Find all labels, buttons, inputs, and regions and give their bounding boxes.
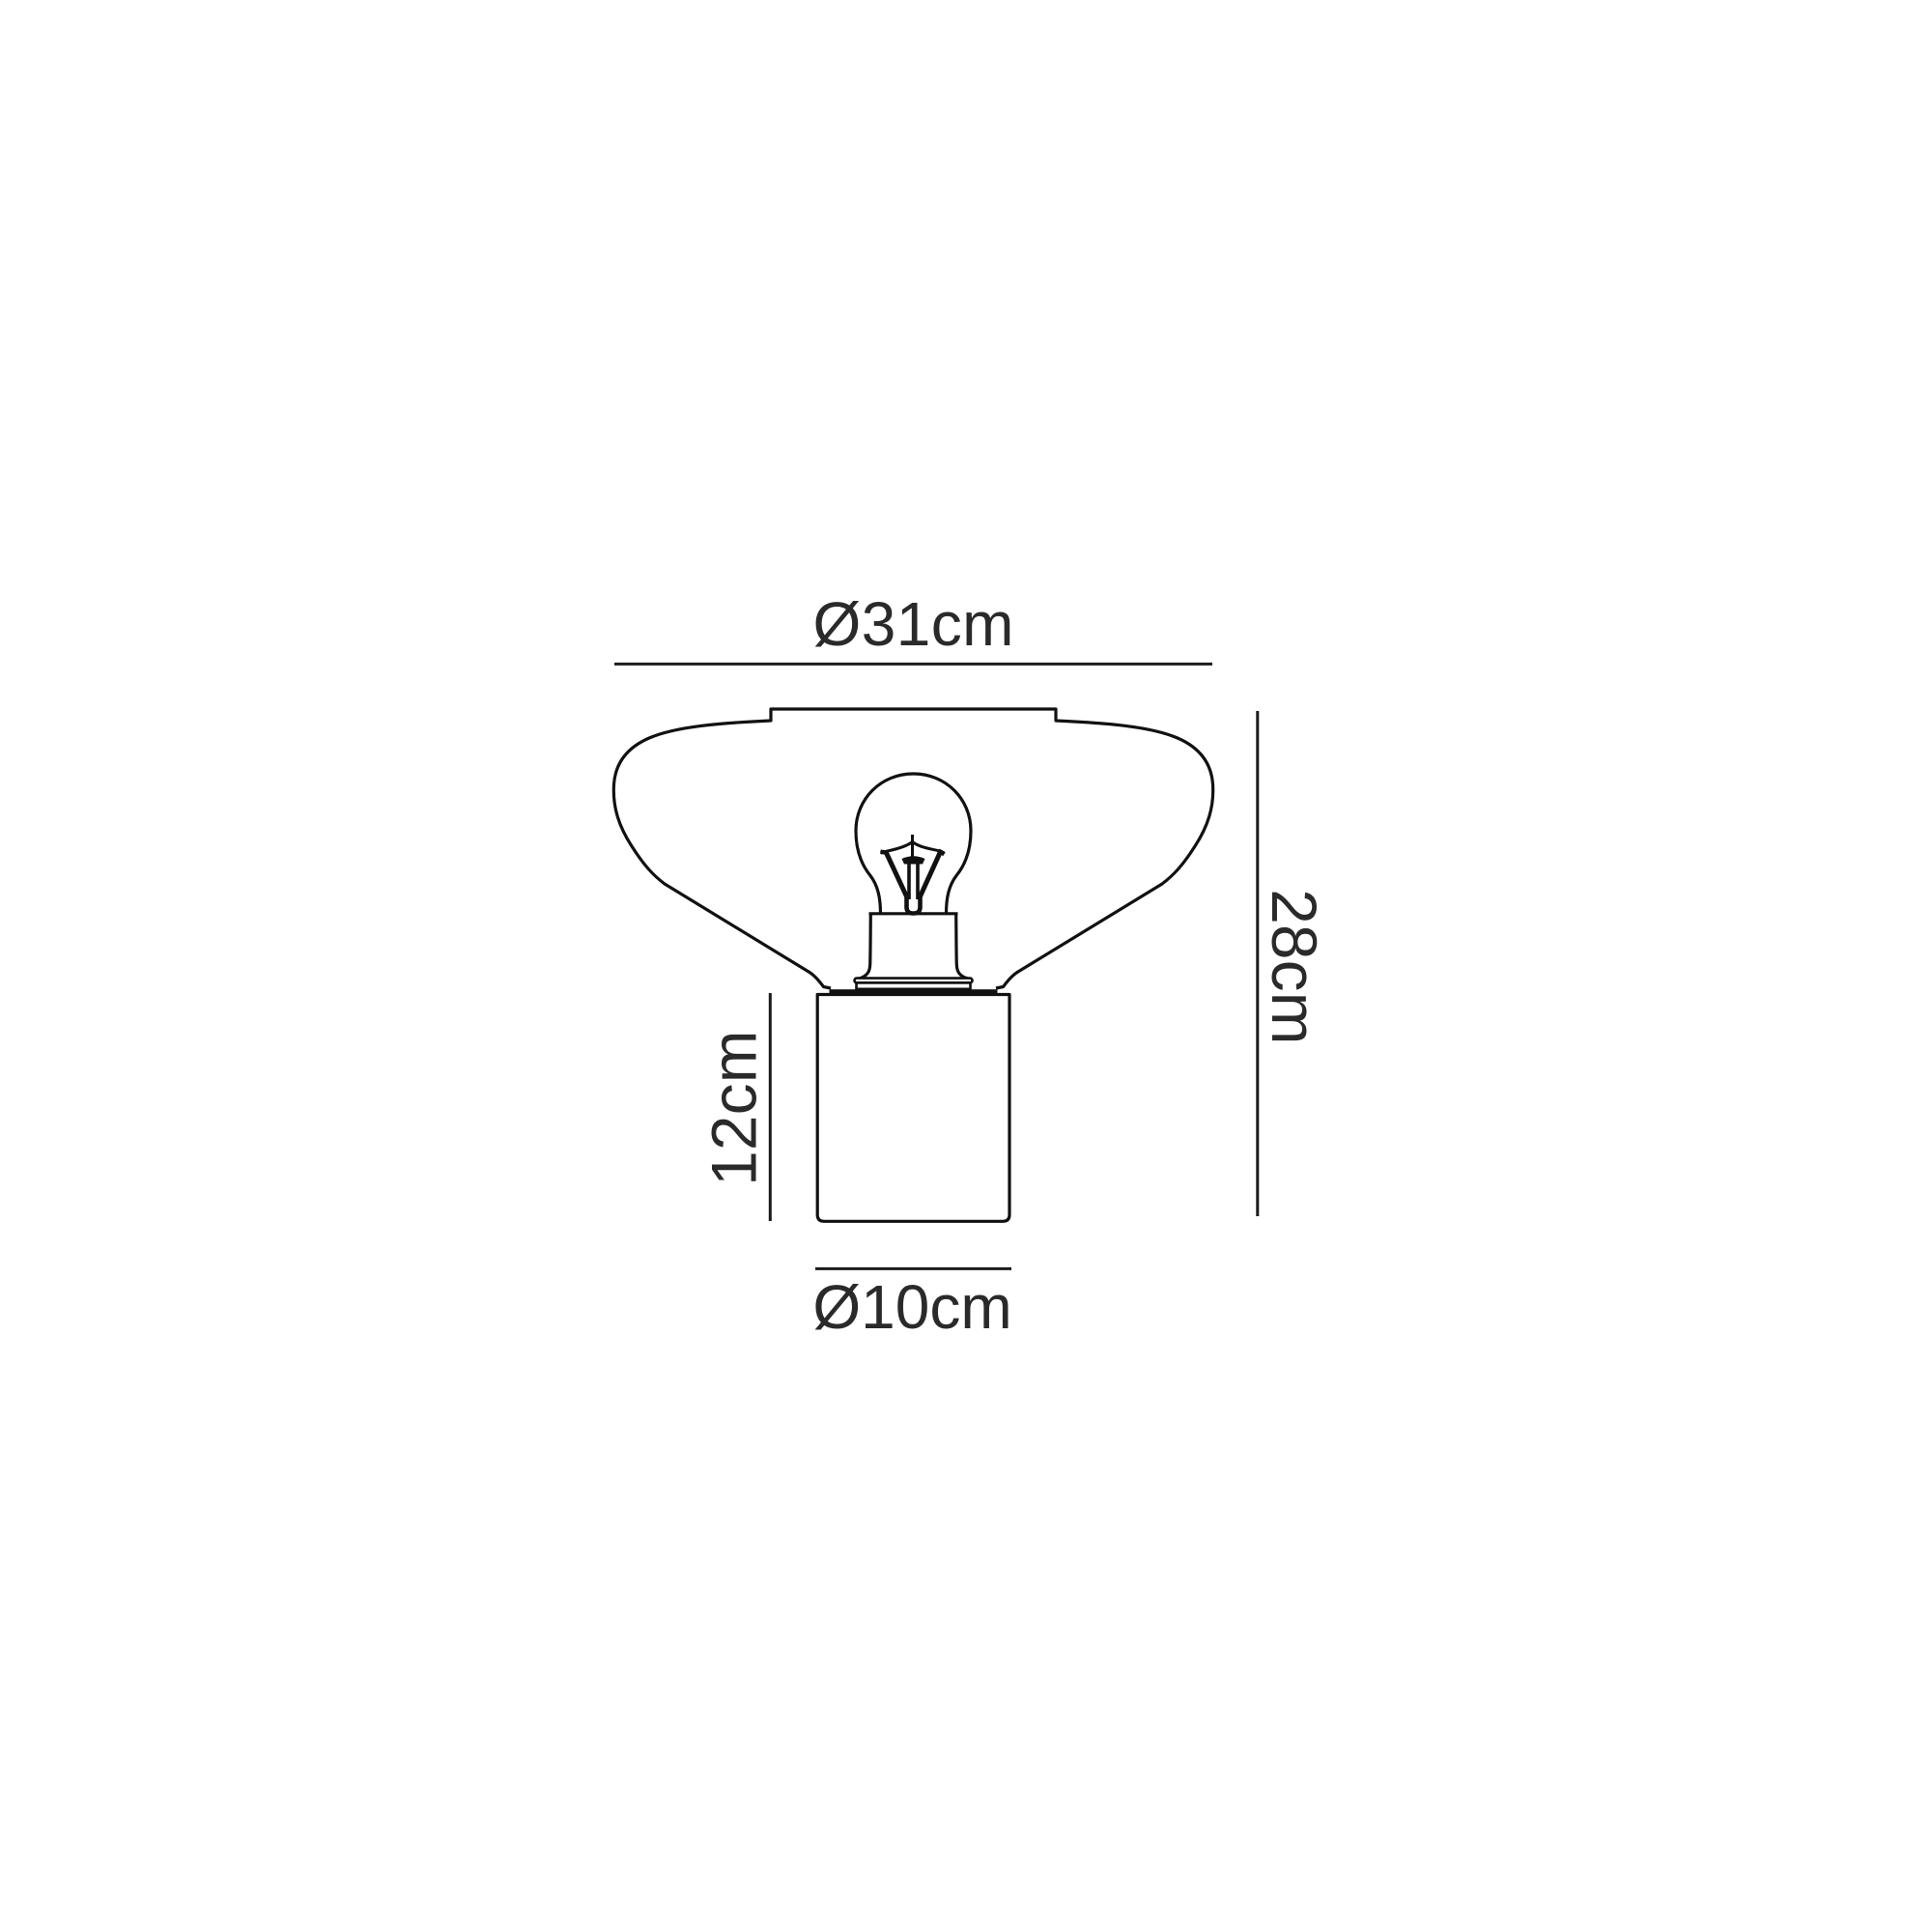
svg-text:Ø10cm: Ø10cm [812,1272,1011,1342]
svg-text:12cm: 12cm [699,1030,770,1185]
svg-text:Ø31cm: Ø31cm [813,589,1014,659]
svg-text:28cm: 28cm [1259,889,1329,1044]
